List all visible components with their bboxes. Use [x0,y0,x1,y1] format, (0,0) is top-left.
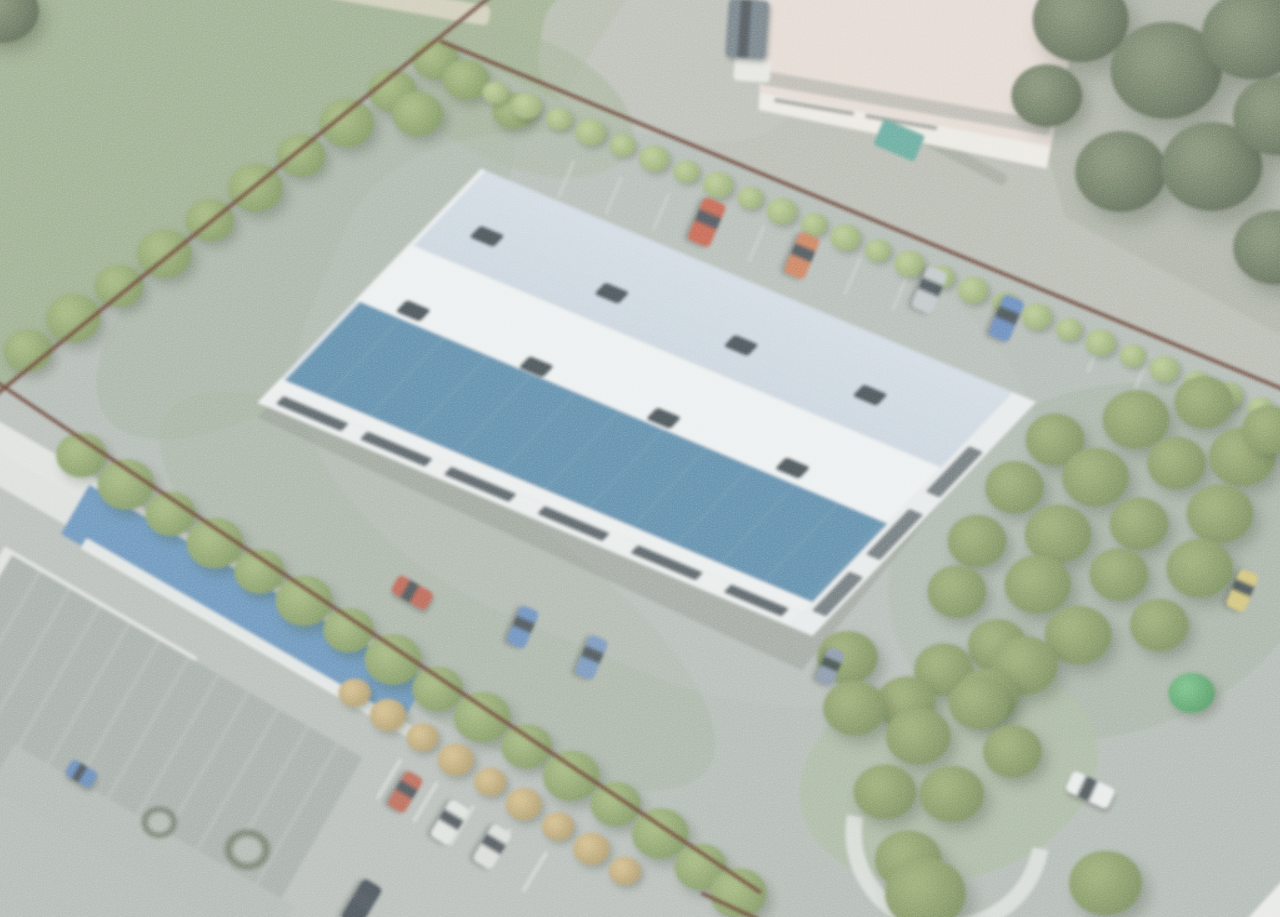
boundary-hedge-northeast [673,160,699,183]
boundary-tree-northwest [277,134,326,177]
boundary-tree-southwest [543,751,600,801]
grove-tree [985,462,1044,514]
autumn-shrub [338,679,370,707]
bright-green-bush [1168,672,1215,713]
grove-tree [1110,498,1169,550]
neighbour-tree-dark [1075,132,1166,212]
boundary-hedge-northeast [894,250,924,277]
autumn-shrub [370,699,406,731]
rooftop-vent-ring [211,818,284,882]
island-tree [983,726,1042,778]
island-tree [886,708,951,765]
boundary-hedge-northeast [546,107,572,130]
boundary-tree-northwest [319,99,374,147]
grove-tree [1062,448,1129,507]
boundary-hedge-northeast [737,186,763,209]
grove-tree [1089,549,1148,601]
grove-tree [1147,437,1206,489]
boundary-hedge-northeast [703,171,733,198]
autumn-shrub [505,788,541,820]
aerial-rendering-photo [0,0,1280,917]
boundary-tree-northwest [95,265,144,308]
grove-tree [1186,484,1253,543]
autumn-shrub [609,857,641,885]
boundary-hedge-northeast [482,81,508,104]
autumn-shrub [474,768,506,796]
boundary-hedge-northeast [1022,303,1052,330]
neighbour-tree-dark [1011,65,1082,127]
boundary-hedge-northeast [575,119,605,146]
autumn-shrub [573,833,609,865]
island-tree [1069,851,1142,915]
boundary-hedge-northeast [1085,329,1115,356]
boundary-tree-northwest [392,92,443,137]
grove-tree [1166,539,1233,598]
truck-cab [733,56,771,83]
island-tree [919,765,984,822]
island-tree [823,680,886,735]
boundary-hedge-northeast [865,239,891,262]
autumn-shrub [542,812,574,840]
boundary-hedge-northeast [639,145,669,172]
boundary-hedge-northeast [511,92,541,119]
scene-layer [0,0,1280,917]
boundary-hedge-northeast [830,224,860,251]
truck [725,0,769,60]
island-tree [949,676,1010,729]
grove-tree [1004,555,1071,614]
grove-tree [948,515,1007,567]
island-tree [854,764,917,819]
boundary-hedge-northeast [958,277,988,304]
autumn-shrub [406,723,438,751]
autumn-shrub [438,744,474,776]
grove-tree [1130,599,1189,651]
boundary-hedge-northeast [1120,344,1146,367]
boundary-hedge-northeast [1149,356,1179,383]
grove-tree [927,566,986,618]
boundary-hedge-northeast [610,134,636,157]
grove-tree [1174,376,1233,428]
boundary-hedge-northeast [1056,318,1082,341]
rooftop-vent-ring [131,797,188,847]
boundary-hedge-northeast [767,198,797,225]
